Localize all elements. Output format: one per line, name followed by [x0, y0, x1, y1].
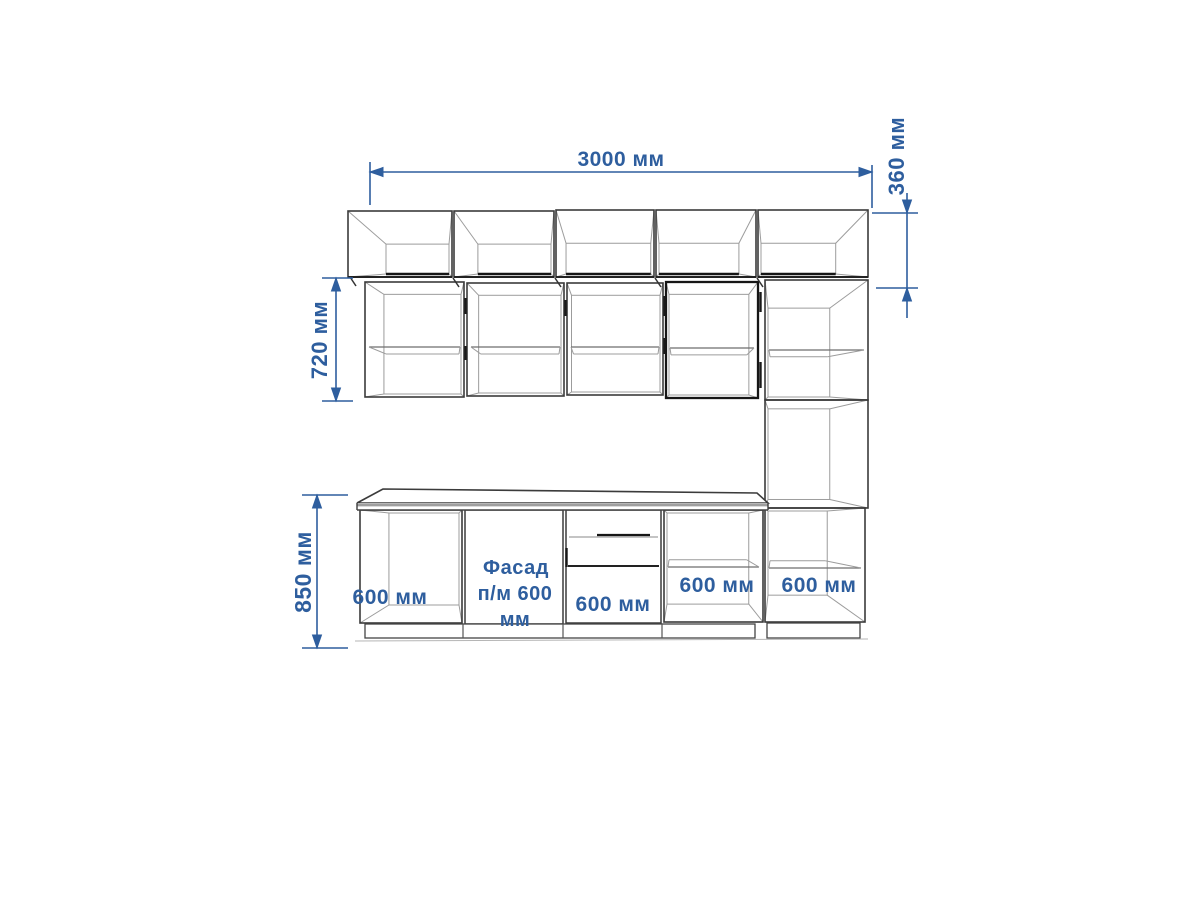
dimension-label-upper-row-height: 360 мм [884, 117, 909, 195]
cabinet-label-base-4: 600 мм [680, 574, 755, 597]
drawing-page: 3000 мм 360 мм 720 мм 850 мм 600 мм Фаса… [0, 0, 1201, 900]
labels: 3000 мм 360 мм 720 мм 850 мм 600 мм Фаса… [290, 117, 909, 631]
cabinet-label-base-3: 600 мм [576, 593, 651, 616]
cabinet-label-base-2-line-3: мм [500, 609, 531, 631]
cabinet-label-base-2-line-2: п/м 600 [478, 583, 553, 605]
dimension-label-base-height: 850 мм [290, 531, 316, 613]
cabinet-label-tall-base: 600 мм [782, 574, 857, 597]
dimension-label-total-width: 3000 мм [577, 148, 664, 171]
cabinet-label-base-2-line-1: Фасад [483, 557, 549, 579]
dimension-label-wall-cabinet-height: 720 мм [307, 301, 332, 379]
kitchen-elevation-drawing: 3000 мм 360 мм 720 мм 850 мм 600 мм Фаса… [0, 0, 1201, 900]
cabinet-label-base-1: 600 мм [353, 586, 428, 609]
